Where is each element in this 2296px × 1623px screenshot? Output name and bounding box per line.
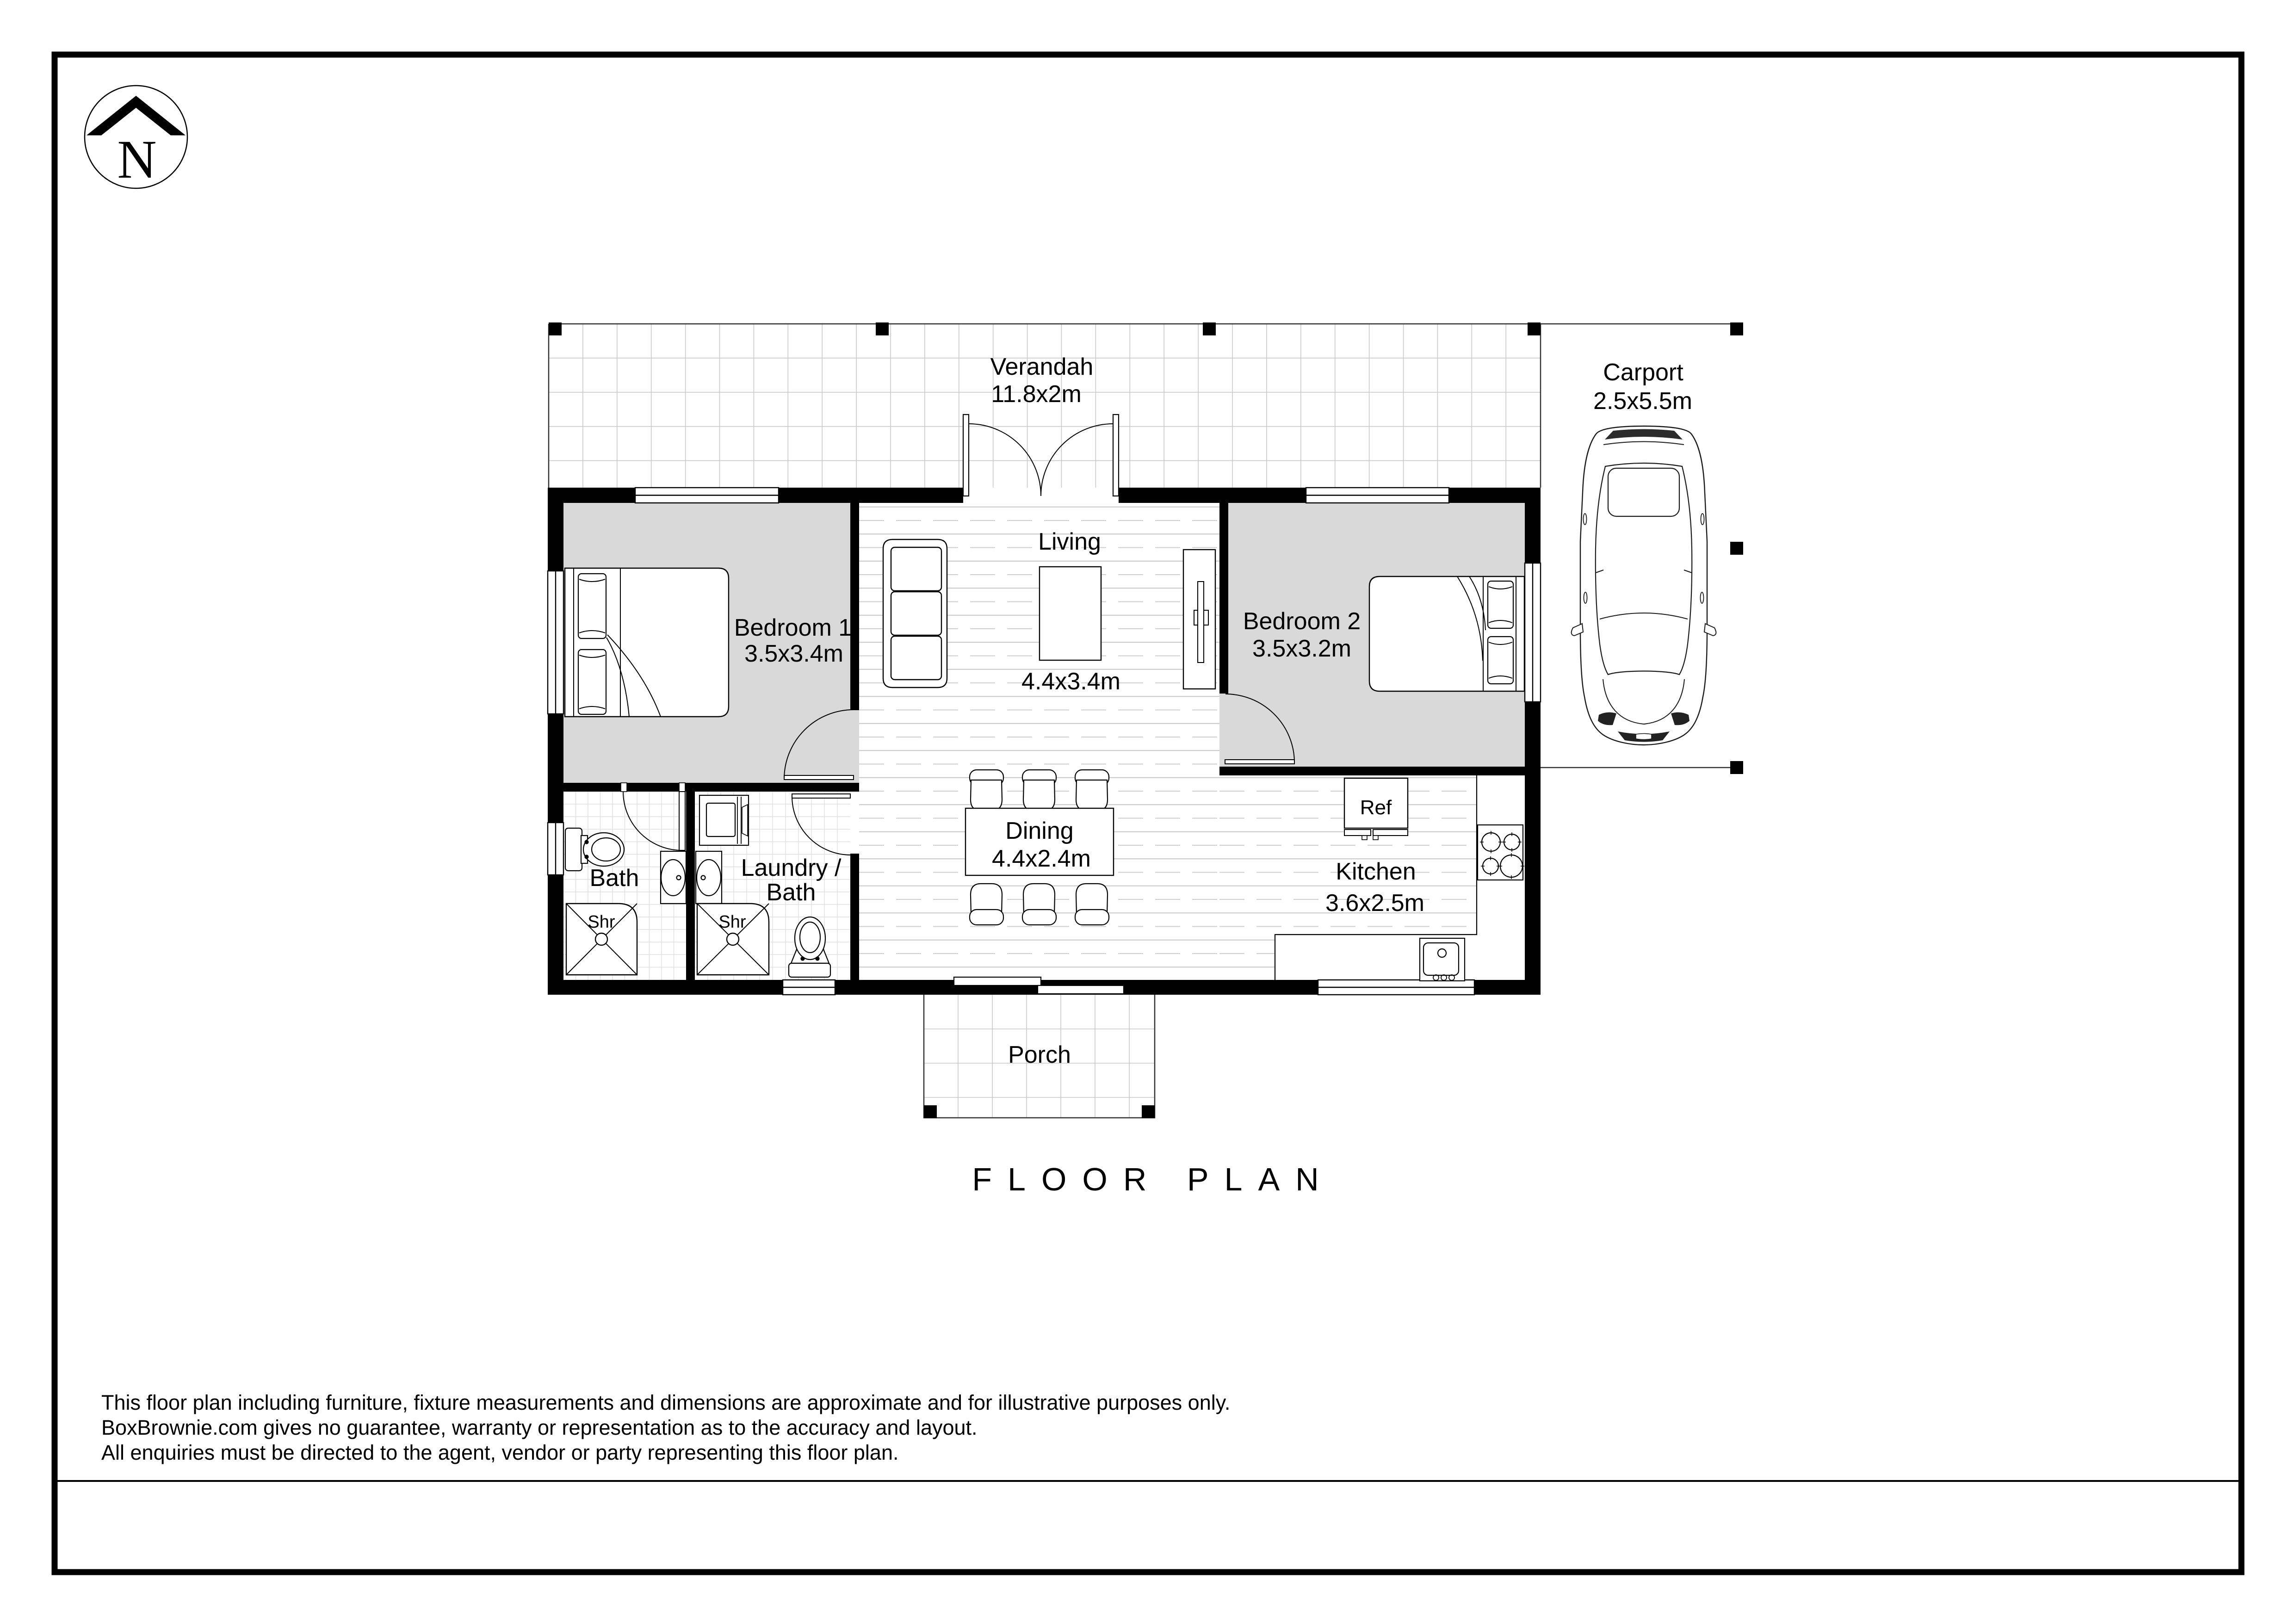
svg-text:11.8x2m: 11.8x2m (991, 381, 1082, 408)
svg-text:Kitchen: Kitchen (1336, 858, 1416, 885)
svg-text:Shr: Shr (588, 912, 615, 932)
svg-text:BoxBrownie.com gives no guaran: BoxBrownie.com gives no guarantee, warra… (101, 1416, 978, 1439)
svg-text:Verandah: Verandah (990, 353, 1094, 380)
svg-text:3.6x2.5m: 3.6x2.5m (1325, 890, 1424, 917)
svg-text:All enquiries must be directed: All enquiries must be directed to the ag… (101, 1441, 898, 1464)
svg-text:Dining: Dining (1005, 818, 1073, 844)
svg-text:Porch: Porch (1008, 1041, 1071, 1068)
svg-text:3.5x3.4m: 3.5x3.4m (744, 640, 843, 667)
svg-text:Laundry /: Laundry / (741, 855, 842, 881)
svg-text:Bedroom 1: Bedroom 1 (734, 614, 852, 641)
svg-text:N: N (117, 129, 156, 190)
svg-text:2.5x5.5m: 2.5x5.5m (1593, 388, 1692, 415)
svg-text:Bath: Bath (590, 865, 639, 892)
svg-text:Shr: Shr (718, 912, 746, 932)
svg-text:4.4x3.4m: 4.4x3.4m (1021, 668, 1120, 695)
svg-text:4.4x2.4m: 4.4x2.4m (992, 845, 1091, 872)
svg-text:Ref: Ref (1360, 796, 1392, 819)
svg-text:Bedroom 2: Bedroom 2 (1243, 608, 1361, 635)
svg-text:FLOOR PLAN: FLOOR PLAN (972, 1161, 1334, 1197)
svg-text:Carport: Carport (1603, 359, 1683, 386)
svg-text:3.5x3.2m: 3.5x3.2m (1252, 635, 1351, 662)
svg-text:Bath: Bath (767, 879, 816, 906)
svg-text:This floor plan including furn: This floor plan including furniture, fix… (101, 1391, 1230, 1414)
svg-text:Living: Living (1038, 528, 1101, 555)
